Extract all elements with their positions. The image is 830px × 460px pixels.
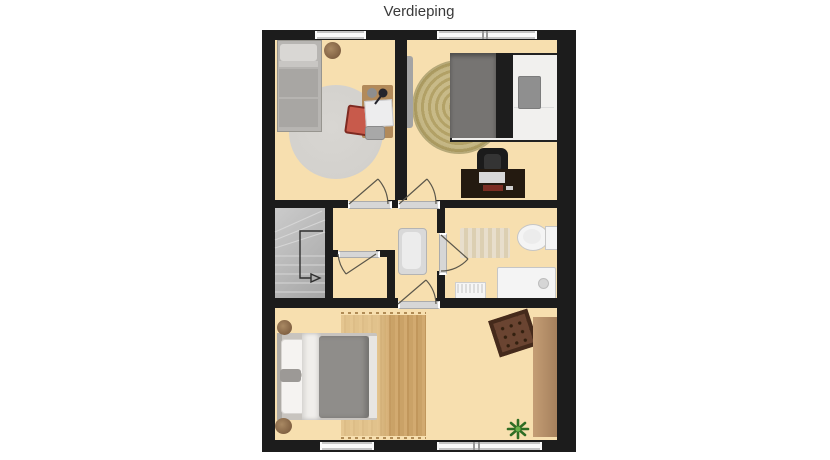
stool [365,126,385,140]
bed-folded-blanket [496,53,513,138]
rug-fringe [341,312,426,314]
wall-segment [387,250,395,298]
shower-drain [538,278,549,289]
window-mullion [478,442,480,450]
wall-segment [275,200,348,208]
door-threshold [398,301,440,309]
bed-blanket [279,67,318,128]
wall-segment [437,271,445,298]
bed-duvet [450,53,496,138]
wall-segment [436,298,557,308]
desk-mouse [506,186,513,190]
wall-segment [437,208,445,233]
small-cushion [280,369,301,382]
bed-sheet-edge [369,336,377,418]
floor-plan [262,30,576,452]
nightstand [277,320,292,335]
door-threshold [338,251,380,258]
outer-wall-right [557,30,576,452]
floor-plan-title: Verdieping [262,3,576,20]
bath-mat [460,228,510,258]
bench [533,317,557,437]
bathtub-basin [402,232,421,269]
door-threshold [398,201,440,209]
bed-pillow [280,44,317,61]
laptop [364,99,394,128]
wall-segment [436,200,557,208]
wall-segment [395,40,407,200]
floor-plan-page: Verdieping [0,0,830,460]
desk-accessory [367,88,377,98]
nightstand [275,418,292,434]
window-mullion [486,31,488,39]
staircase [275,208,325,298]
window [437,442,542,450]
basket [324,42,341,59]
throw-pillow [518,76,541,109]
window [315,31,366,39]
window [320,442,374,450]
rug-fringe [341,437,426,439]
outer-wall-left [262,30,275,452]
window-mullion [473,442,475,450]
toilet-seat [523,229,541,244]
wall-segment [275,298,398,308]
door-threshold [348,201,392,209]
desk-pad [479,172,505,183]
bed-duvet [319,336,369,418]
window-mullion [482,31,484,39]
wall-segment [325,250,338,257]
desk-keyboard [483,185,503,191]
door-threshold [439,233,447,275]
